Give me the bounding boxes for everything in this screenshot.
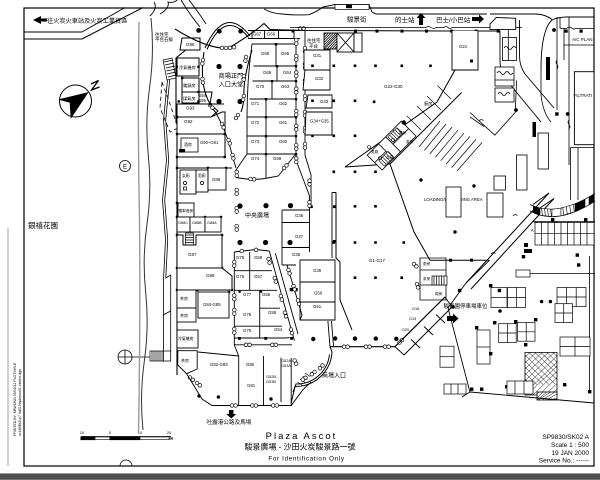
svg-text:商場入口: 商場入口 xyxy=(322,372,346,380)
svg-text:駿景街: 駿景街 xyxy=(347,15,367,24)
svg-text:G18: G18 xyxy=(412,307,419,311)
svg-text:G87: G87 xyxy=(188,252,197,257)
svg-text:G64: G64 xyxy=(283,70,292,75)
svg-text:G69: G69 xyxy=(263,70,272,75)
svg-text:電房: 電房 xyxy=(399,130,407,135)
svg-text:廚房: 廚房 xyxy=(423,261,431,266)
svg-text:19 JAN 2000: 19 JAN 2000 xyxy=(551,450,589,457)
svg-text:中央廣場: 中央廣場 xyxy=(245,212,269,220)
svg-text:G65: G65 xyxy=(281,51,290,56)
svg-text:G51: G51 xyxy=(313,304,322,309)
svg-text:G31: G31 xyxy=(313,53,322,58)
svg-text:G88A: G88A xyxy=(207,221,217,225)
svg-text:平台石級: 平台石級 xyxy=(155,36,173,43)
svg-text:G57: G57 xyxy=(254,274,263,279)
svg-text:茶房: 茶房 xyxy=(406,139,414,144)
svg-text:G56: G56 xyxy=(262,292,271,297)
svg-text:G74: G74 xyxy=(251,156,260,161)
svg-text:G61: G61 xyxy=(279,120,288,125)
svg-text:G32: G32 xyxy=(315,76,324,81)
svg-text:巴士/小巴站: 巴士/小巴站 xyxy=(436,15,471,24)
svg-text:A/C PLAN: A/C PLAN xyxy=(572,37,593,42)
svg-text:G20: G20 xyxy=(402,328,409,332)
svg-text:G68: G68 xyxy=(261,51,270,56)
svg-text:G79: G79 xyxy=(243,328,252,333)
svg-text:G50: G50 xyxy=(314,291,323,296)
svg-text:茶房: 茶房 xyxy=(180,295,188,301)
svg-text:煤氣房: 煤氣房 xyxy=(183,95,196,102)
svg-text:焗房: 焗房 xyxy=(435,291,443,296)
svg-text:G71: G71 xyxy=(251,101,260,106)
svg-text:10: 10 xyxy=(80,430,85,435)
svg-text:Service No.: ------: Service No.: ------ xyxy=(539,458,589,465)
svg-text:20: 20 xyxy=(167,430,172,435)
svg-text:G55: G55 xyxy=(268,310,277,315)
svg-text:茶房: 茶房 xyxy=(180,312,188,318)
svg-text:G53A: G53A xyxy=(281,363,291,368)
svg-text:G82-G83: G82-G83 xyxy=(210,362,228,367)
svg-text:G76: G76 xyxy=(236,274,245,279)
svg-text:男廁: 男廁 xyxy=(371,149,379,154)
svg-text:G59: G59 xyxy=(273,156,282,161)
svg-text:G84-G85: G84-G85 xyxy=(203,302,221,307)
svg-text:酒房: 酒房 xyxy=(184,141,192,147)
svg-text:女廁: 女廁 xyxy=(386,155,394,160)
svg-text:G70: G70 xyxy=(256,84,265,89)
svg-text:G86: G86 xyxy=(206,273,215,278)
svg-text:G54: G54 xyxy=(274,327,283,332)
svg-text:廚房: 廚房 xyxy=(424,100,432,107)
svg-text:G62: G62 xyxy=(279,101,288,106)
svg-text:G21: G21 xyxy=(459,44,468,49)
svg-text:G22-G30: G22-G30 xyxy=(384,84,403,89)
svg-text:G89: G89 xyxy=(212,177,221,182)
svg-text:的士站: 的士站 xyxy=(395,15,415,24)
svg-text:G60: G60 xyxy=(279,139,288,144)
svg-text:acLtWEtZcp7 5d019bydrawn01-ske: acLtWEtZcp7 5d019bydrawn01-sketch.dgn xyxy=(18,369,22,436)
svg-text:G96: G96 xyxy=(186,42,195,47)
svg-text:女廁: 女廁 xyxy=(182,173,190,178)
svg-text:G58: G58 xyxy=(254,255,263,260)
svg-text:Plaza Ascot: Plaza Ascot xyxy=(266,431,338,442)
svg-text:FILTRATI: FILTRATI xyxy=(574,93,593,98)
svg-text:G73: G73 xyxy=(251,139,260,144)
svg-text:銀禧花園: 銀禧花園 xyxy=(28,220,58,230)
svg-text:G81: G81 xyxy=(247,383,256,388)
svg-text:平台: 平台 xyxy=(309,43,318,50)
svg-text:駿景廣場 - 沙田火炭駿景路一號: 駿景廣場 - 沙田火炭駿景路一號 xyxy=(244,442,355,452)
svg-text:吐露港公路及馬場: 吐露港公路及馬場 xyxy=(207,418,252,426)
svg-text:茶房: 茶房 xyxy=(181,357,189,363)
svg-text:PRINTED BY: KBWONG 09/02/22: PRINTED BY: KBWONG 09/02/22 PLOTStYLE xyxy=(13,362,17,436)
svg-text:G33: G33 xyxy=(320,99,329,104)
svg-text:G63: G63 xyxy=(281,84,290,89)
svg-text:駿景園停車場車位: 駿景園停車場車位 xyxy=(444,302,489,310)
svg-text:商場正門: 商場正門 xyxy=(219,72,244,80)
svg-text:Scale 1 : 500: Scale 1 : 500 xyxy=(551,442,589,449)
svg-text:G88C: G88C xyxy=(178,221,188,225)
svg-text:G53B: G53B xyxy=(266,379,276,384)
svg-text:入口大堂: 入口大堂 xyxy=(219,81,244,89)
svg-text:G93: G93 xyxy=(186,106,195,111)
svg-text:往火炭火車站及火炭工業貿區: 往火炭火車站及火炭工業貿區 xyxy=(47,17,127,25)
svg-text:G36: G36 xyxy=(295,213,304,218)
svg-text:電錶房: 電錶房 xyxy=(183,82,196,89)
svg-text:冷氣機房: 冷氣機房 xyxy=(179,64,196,71)
svg-text:G19: G19 xyxy=(409,317,416,321)
svg-text:茶房: 茶房 xyxy=(423,276,431,281)
svg-text:G39: G39 xyxy=(313,268,322,273)
svg-text:30: 30 xyxy=(169,436,174,441)
svg-text:電掣燈房: 電掣燈房 xyxy=(179,208,194,213)
svg-text:G92: G92 xyxy=(184,119,193,124)
svg-text:G34+G35: G34+G35 xyxy=(310,119,329,124)
svg-text:G72: G72 xyxy=(251,120,260,125)
svg-text:For Identification Only: For Identification Only xyxy=(268,456,344,463)
svg-text:G88B: G88B xyxy=(192,221,202,225)
svg-text:G80: G80 xyxy=(246,362,255,367)
svg-text:G38: G38 xyxy=(292,252,301,257)
svg-text:G67: G67 xyxy=(253,32,262,37)
svg-text:G77: G77 xyxy=(243,292,252,297)
svg-text:G75: G75 xyxy=(236,255,245,260)
svg-text:G90+G91: G90+G91 xyxy=(200,140,219,145)
svg-text:G1-G17: G1-G17 xyxy=(369,258,386,263)
svg-text:男廁: 男廁 xyxy=(198,173,206,178)
svg-text:G66: G66 xyxy=(267,32,276,37)
svg-text:G37: G37 xyxy=(295,234,304,239)
svg-text:往住宅: 往住宅 xyxy=(307,37,321,43)
svg-text:G78: G78 xyxy=(243,312,252,317)
svg-text:E: E xyxy=(123,165,127,171)
svg-text:冷氣機房: 冷氣機房 xyxy=(178,336,194,341)
svg-text:SP9830/SK02 A: SP9830/SK02 A xyxy=(542,434,589,441)
